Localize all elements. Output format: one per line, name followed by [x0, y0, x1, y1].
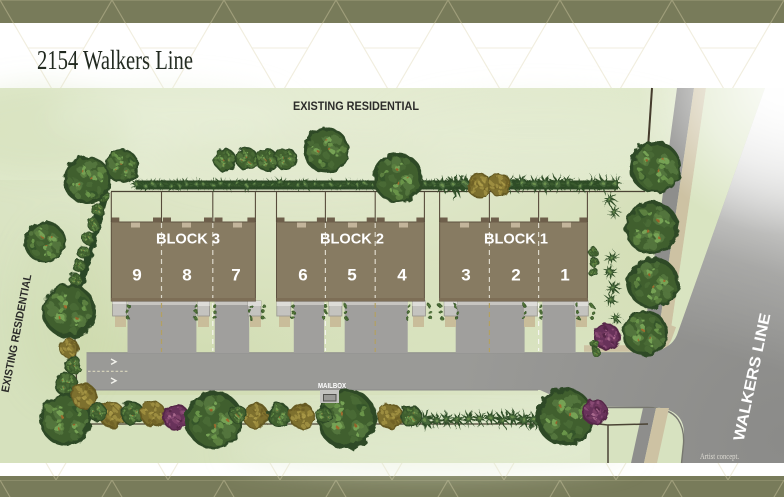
svg-text:4: 4 — [397, 266, 407, 285]
svg-text:2154 Walkers Line: 2154 Walkers Line — [37, 45, 193, 75]
svg-text:1: 1 — [560, 266, 569, 285]
svg-text:6: 6 — [298, 266, 307, 285]
svg-text:BLOCK 1: BLOCK 1 — [484, 231, 548, 248]
svg-text:9: 9 — [132, 266, 141, 285]
svg-text:8: 8 — [182, 266, 191, 285]
svg-text:7: 7 — [231, 266, 240, 285]
svg-text:2: 2 — [511, 266, 520, 285]
svg-text:BLOCK 3: BLOCK 3 — [156, 231, 220, 248]
svg-text:3: 3 — [461, 266, 470, 285]
svg-text:MAILBOX: MAILBOX — [318, 381, 346, 390]
svg-text:5: 5 — [347, 266, 356, 285]
svg-text:BLOCK 2: BLOCK 2 — [320, 231, 384, 248]
svg-text:Artist concept.: Artist concept. — [700, 451, 739, 461]
svg-text:EXISTING RESIDENTIAL: EXISTING RESIDENTIAL — [293, 101, 419, 113]
